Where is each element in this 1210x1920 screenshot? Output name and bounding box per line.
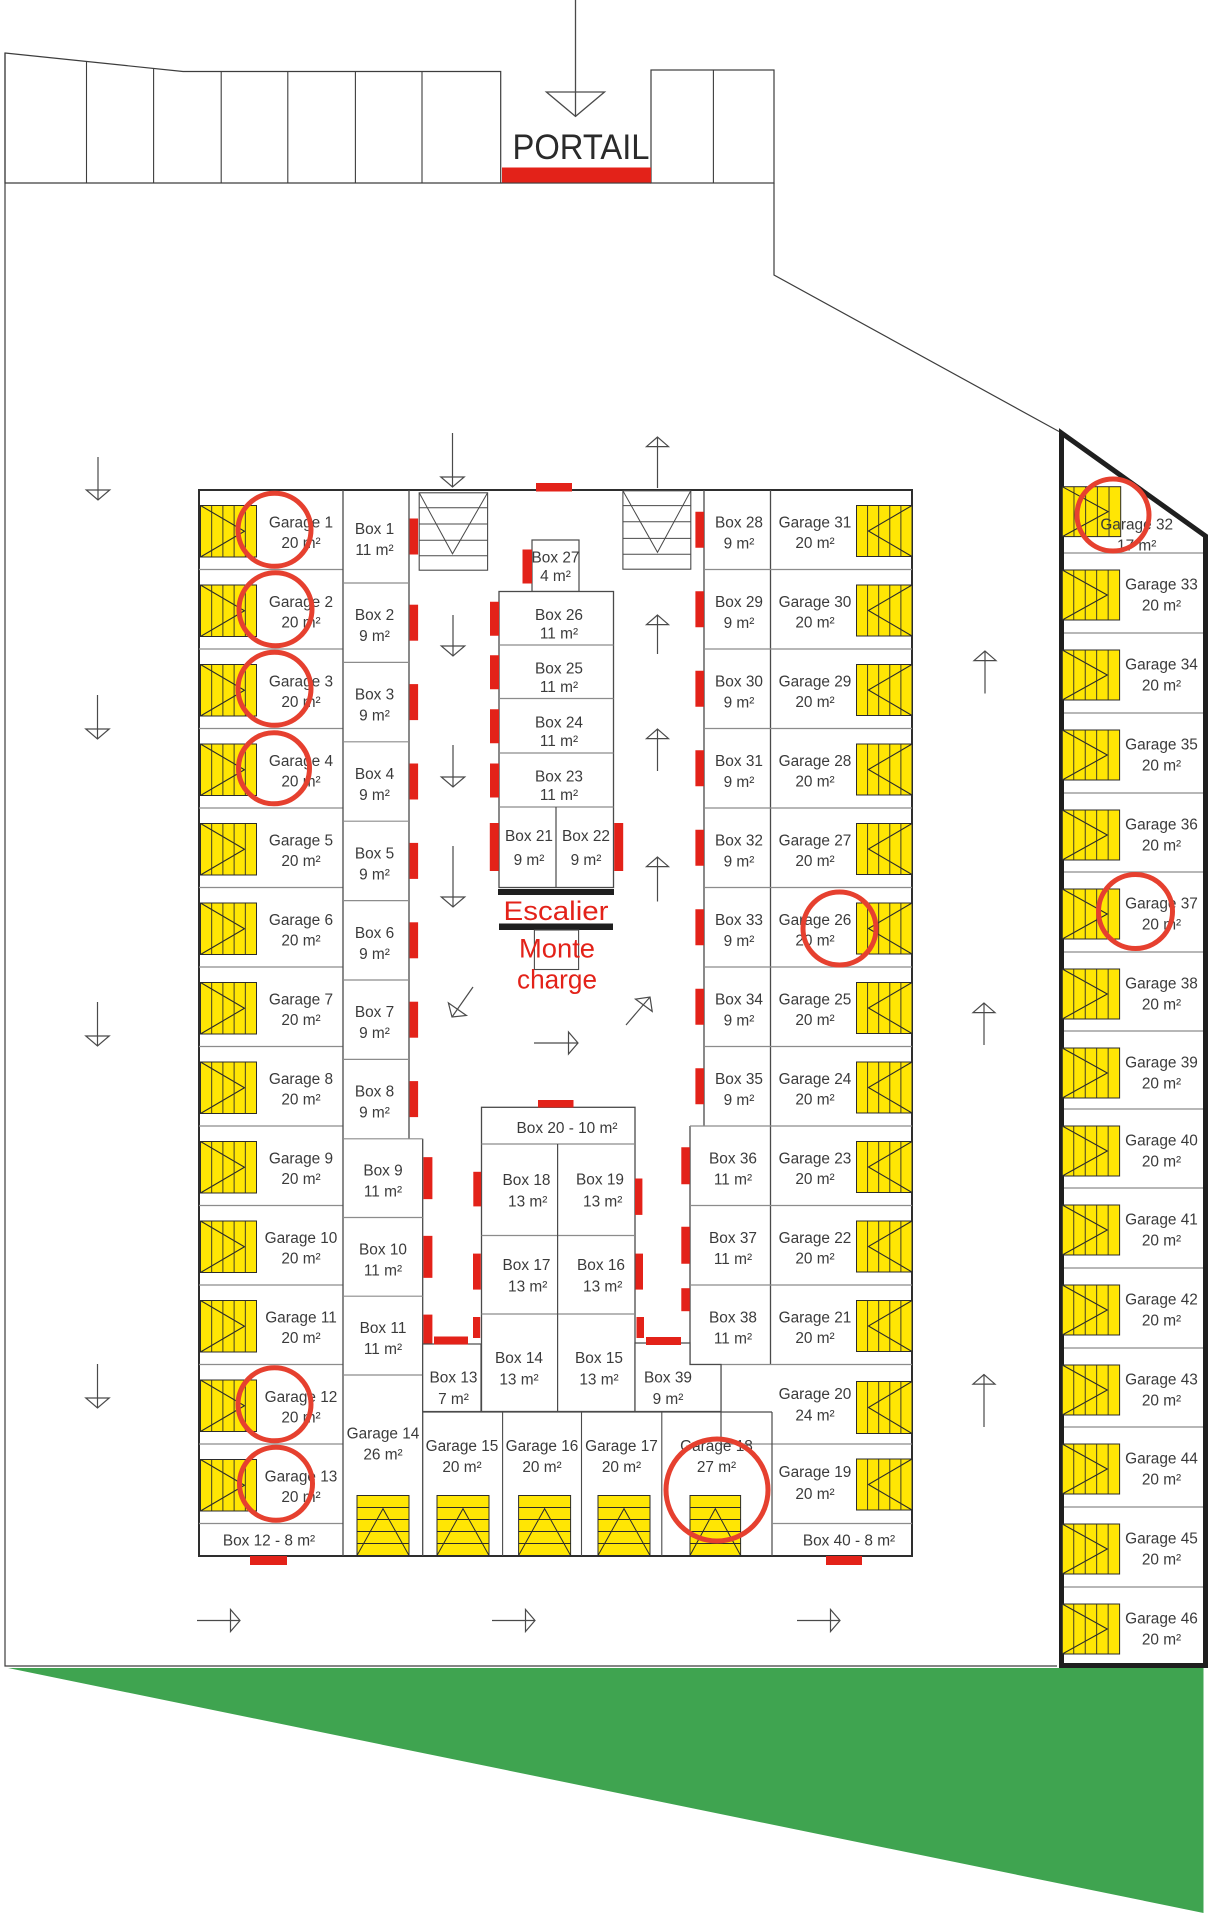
svg-text:27 m²: 27 m² [697, 1459, 736, 1476]
svg-text:20 m²: 20 m² [522, 1459, 561, 1476]
svg-text:9 m²: 9 m² [653, 1391, 684, 1408]
svg-text:Garage 26: Garage 26 [779, 912, 852, 929]
svg-text:11 m²: 11 m² [364, 1341, 402, 1358]
svg-text:11 m²: 11 m² [540, 625, 578, 642]
svg-text:Box 19: Box 19 [576, 1172, 624, 1189]
svg-text:11 m²: 11 m² [540, 787, 578, 804]
svg-text:Box 15: Box 15 [575, 1350, 623, 1367]
svg-text:Box 25: Box 25 [535, 660, 583, 677]
svg-text:20 m²: 20 m² [795, 1330, 834, 1347]
svg-text:20 m²: 20 m² [795, 1171, 834, 1188]
svg-text:Box 40 - 8 m²: Box 40 - 8 m² [803, 1533, 895, 1550]
svg-text:26 m²: 26 m² [363, 1447, 402, 1464]
svg-text:20 m²: 20 m² [281, 853, 320, 870]
svg-text:Garage 30: Garage 30 [779, 594, 852, 611]
svg-text:Box 12 - 8 m²: Box 12 - 8 m² [223, 1533, 315, 1550]
svg-text:13 m²: 13 m² [508, 1194, 547, 1211]
svg-text:20 m²: 20 m² [281, 615, 320, 632]
svg-text:Garage 45: Garage 45 [1125, 1531, 1198, 1548]
svg-text:Box 32: Box 32 [715, 832, 763, 849]
svg-text:Box 33: Box 33 [715, 912, 763, 929]
svg-text:Garage 6: Garage 6 [269, 912, 333, 929]
svg-text:Box 10: Box 10 [359, 1241, 407, 1258]
svg-text:Box 1: Box 1 [355, 521, 394, 538]
svg-text:Garage 38: Garage 38 [1125, 976, 1198, 993]
svg-text:Box 26: Box 26 [535, 607, 583, 624]
svg-text:Garage 15: Garage 15 [426, 1438, 499, 1455]
svg-text:charge: charge [517, 965, 597, 995]
svg-text:11 m²: 11 m² [714, 1171, 752, 1188]
svg-text:Garage 1: Garage 1 [269, 515, 333, 532]
svg-text:11 m²: 11 m² [364, 1184, 402, 1201]
svg-text:Garage 34: Garage 34 [1125, 657, 1198, 674]
svg-text:24 m²: 24 m² [795, 1408, 834, 1425]
svg-text:20 m²: 20 m² [795, 1012, 834, 1029]
svg-text:20 m²: 20 m² [602, 1459, 641, 1476]
svg-text:20 m²: 20 m² [795, 774, 834, 791]
svg-text:Garage 3: Garage 3 [269, 674, 333, 691]
svg-text:Garage 2: Garage 2 [269, 594, 333, 611]
svg-text:Box 8: Box 8 [355, 1084, 394, 1101]
svg-text:20 m²: 20 m² [1142, 1472, 1181, 1489]
svg-text:9 m²: 9 m² [724, 694, 755, 711]
svg-text:20 m²: 20 m² [1142, 678, 1181, 695]
svg-text:Box 29: Box 29 [715, 594, 763, 611]
svg-text:9 m²: 9 m² [359, 1105, 390, 1122]
svg-text:Garage 23: Garage 23 [779, 1151, 852, 1168]
svg-text:Garage 16: Garage 16 [506, 1438, 579, 1455]
svg-text:20 m²: 20 m² [281, 1410, 320, 1427]
svg-text:Box 2: Box 2 [355, 607, 394, 624]
svg-text:20 m²: 20 m² [1142, 1632, 1181, 1649]
svg-text:Box 5: Box 5 [355, 845, 394, 862]
svg-text:20 m²: 20 m² [281, 1489, 320, 1506]
svg-text:13 m²: 13 m² [508, 1279, 547, 1296]
svg-text:11 m²: 11 m² [364, 1262, 402, 1279]
svg-text:Garage 9: Garage 9 [269, 1151, 333, 1168]
svg-text:Garage 46: Garage 46 [1125, 1611, 1198, 1628]
svg-text:PORTAIL: PORTAIL [513, 128, 650, 167]
svg-text:Garage 28: Garage 28 [779, 753, 852, 770]
svg-text:Box 27: Box 27 [532, 550, 580, 567]
svg-text:Box 34: Box 34 [715, 991, 763, 1008]
svg-text:Garage 10: Garage 10 [265, 1230, 338, 1247]
svg-text:13 m²: 13 m² [583, 1279, 622, 1296]
svg-text:Garage 19: Garage 19 [779, 1464, 852, 1481]
svg-text:Garage 44: Garage 44 [1125, 1451, 1198, 1468]
svg-text:Box 7: Box 7 [355, 1004, 394, 1021]
svg-text:20 m²: 20 m² [1142, 1313, 1181, 1330]
svg-text:9 m²: 9 m² [724, 774, 755, 791]
svg-text:20 m²: 20 m² [1142, 598, 1181, 615]
svg-text:Escalier: Escalier [504, 896, 609, 926]
svg-text:9 m²: 9 m² [724, 853, 755, 870]
svg-text:Garage 12: Garage 12 [265, 1389, 338, 1406]
svg-text:Garage 25: Garage 25 [779, 992, 852, 1009]
svg-text:9 m²: 9 m² [514, 852, 545, 869]
svg-text:13 m²: 13 m² [583, 1194, 622, 1211]
svg-text:Garage 17: Garage 17 [585, 1438, 658, 1455]
svg-text:11 m²: 11 m² [355, 542, 393, 559]
svg-text:9 m²: 9 m² [359, 628, 390, 645]
svg-text:9 m²: 9 m² [359, 787, 390, 804]
svg-text:20 m²: 20 m² [281, 1171, 320, 1188]
svg-text:4 m²: 4 m² [540, 568, 571, 585]
svg-text:Garage 13: Garage 13 [265, 1469, 338, 1486]
svg-text:Box 39: Box 39 [644, 1370, 692, 1387]
svg-text:20 m²: 20 m² [1142, 838, 1181, 855]
svg-text:Garage 14: Garage 14 [347, 1426, 420, 1443]
svg-text:Garage 29: Garage 29 [779, 674, 852, 691]
svg-text:Garage 36: Garage 36 [1125, 817, 1198, 834]
svg-text:Garage 21: Garage 21 [779, 1310, 852, 1327]
svg-text:Box 20 - 10 m²: Box 20 - 10 m² [517, 1120, 618, 1137]
svg-text:20 m²: 20 m² [1142, 917, 1181, 934]
svg-text:Garage 43: Garage 43 [1125, 1372, 1198, 1389]
svg-text:20 m²: 20 m² [795, 1251, 834, 1268]
svg-text:Box 36: Box 36 [709, 1150, 757, 1167]
svg-text:Box 28: Box 28 [715, 514, 763, 531]
svg-text:Box 24: Box 24 [535, 714, 583, 731]
svg-text:9 m²: 9 m² [359, 866, 390, 883]
svg-text:Garage 4: Garage 4 [269, 753, 334, 770]
svg-text:Box 16: Box 16 [577, 1257, 625, 1274]
svg-text:Garage 42: Garage 42 [1125, 1292, 1198, 1309]
svg-text:20 m²: 20 m² [1142, 758, 1181, 775]
svg-text:20 m²: 20 m² [281, 933, 320, 950]
svg-text:Garage 41: Garage 41 [1125, 1212, 1198, 1229]
svg-text:Box 23: Box 23 [535, 769, 583, 786]
svg-text:11 m²: 11 m² [714, 1330, 752, 1347]
svg-text:20 m²: 20 m² [795, 853, 834, 870]
svg-text:Garage 24: Garage 24 [779, 1071, 852, 1088]
svg-text:20 m²: 20 m² [281, 1012, 320, 1029]
svg-text:Box 21: Box 21 [505, 828, 553, 845]
svg-text:9 m²: 9 m² [359, 708, 390, 725]
svg-text:20 m²: 20 m² [1142, 1154, 1181, 1171]
svg-text:Box 3: Box 3 [355, 687, 394, 704]
svg-text:20 m²: 20 m² [281, 1092, 320, 1109]
svg-text:20 m²: 20 m² [281, 1251, 320, 1268]
svg-text:Garage 8: Garage 8 [269, 1071, 333, 1088]
svg-text:Garage 31: Garage 31 [779, 515, 852, 532]
svg-text:Box 35: Box 35 [715, 1071, 763, 1088]
svg-text:Box 6: Box 6 [355, 925, 394, 942]
svg-text:9 m²: 9 m² [359, 946, 390, 963]
svg-text:Garage 32: Garage 32 [1100, 517, 1173, 534]
svg-text:20 m²: 20 m² [281, 535, 320, 552]
svg-text:Garage 11: Garage 11 [265, 1310, 337, 1327]
svg-text:Garage 22: Garage 22 [779, 1230, 852, 1247]
svg-text:9 m²: 9 m² [724, 933, 755, 950]
svg-text:Garage 40: Garage 40 [1125, 1133, 1198, 1150]
svg-text:13 m²: 13 m² [579, 1372, 618, 1389]
svg-text:20 m²: 20 m² [1142, 1393, 1181, 1410]
svg-text:11 m²: 11 m² [540, 733, 578, 750]
svg-text:Garage 20: Garage 20 [779, 1386, 852, 1403]
svg-text:Garage 7: Garage 7 [269, 992, 333, 1009]
svg-text:20 m²: 20 m² [1142, 1076, 1181, 1093]
svg-text:Garage 27: Garage 27 [779, 833, 852, 850]
svg-text:9 m²: 9 m² [724, 1092, 755, 1109]
svg-text:20 m²: 20 m² [442, 1459, 481, 1476]
svg-text:Box 11: Box 11 [360, 1320, 407, 1337]
svg-text:20 m²: 20 m² [795, 1486, 834, 1503]
svg-text:Box 22: Box 22 [562, 828, 610, 845]
svg-text:Box 37: Box 37 [709, 1230, 757, 1247]
svg-text:11 m²: 11 m² [540, 679, 578, 696]
svg-text:Box 31: Box 31 [715, 753, 763, 770]
svg-text:9 m²: 9 m² [724, 535, 755, 552]
svg-text:20 m²: 20 m² [795, 694, 834, 711]
svg-text:Garage 37: Garage 37 [1125, 896, 1198, 913]
svg-text:20 m²: 20 m² [795, 1092, 834, 1109]
svg-text:Box 30: Box 30 [715, 673, 763, 690]
svg-text:Box 38: Box 38 [709, 1309, 757, 1326]
svg-text:Box 9: Box 9 [363, 1163, 402, 1180]
svg-text:20 m²: 20 m² [281, 1330, 320, 1347]
svg-text:20 m²: 20 m² [795, 615, 834, 632]
svg-text:Garage 33: Garage 33 [1125, 577, 1198, 594]
svg-text:Box 13: Box 13 [430, 1370, 478, 1387]
svg-text:Garage 35: Garage 35 [1125, 737, 1198, 754]
svg-text:9 m²: 9 m² [724, 615, 755, 632]
svg-text:Garage 39: Garage 39 [1125, 1055, 1198, 1072]
svg-text:20 m²: 20 m² [795, 535, 834, 552]
svg-text:20 m²: 20 m² [1142, 997, 1181, 1014]
svg-text:Box 17: Box 17 [503, 1257, 551, 1274]
svg-text:13 m²: 13 m² [499, 1372, 538, 1389]
svg-text:Garage 5: Garage 5 [269, 833, 333, 850]
svg-text:9 m²: 9 m² [359, 1025, 390, 1042]
svg-text:Box 4: Box 4 [355, 766, 395, 783]
svg-text:20 m²: 20 m² [281, 694, 320, 711]
svg-text:11 m²: 11 m² [714, 1251, 752, 1268]
svg-text:7 m²: 7 m² [438, 1391, 469, 1408]
svg-text:20 m²: 20 m² [1142, 1233, 1181, 1250]
svg-text:9 m²: 9 m² [571, 852, 602, 869]
svg-text:Box 18: Box 18 [503, 1172, 551, 1189]
svg-text:Box 14: Box 14 [495, 1350, 543, 1367]
svg-text:Monte: Monte [519, 934, 595, 964]
svg-text:20 m²: 20 m² [1142, 1552, 1181, 1569]
svg-text:9 m²: 9 m² [724, 1012, 755, 1029]
